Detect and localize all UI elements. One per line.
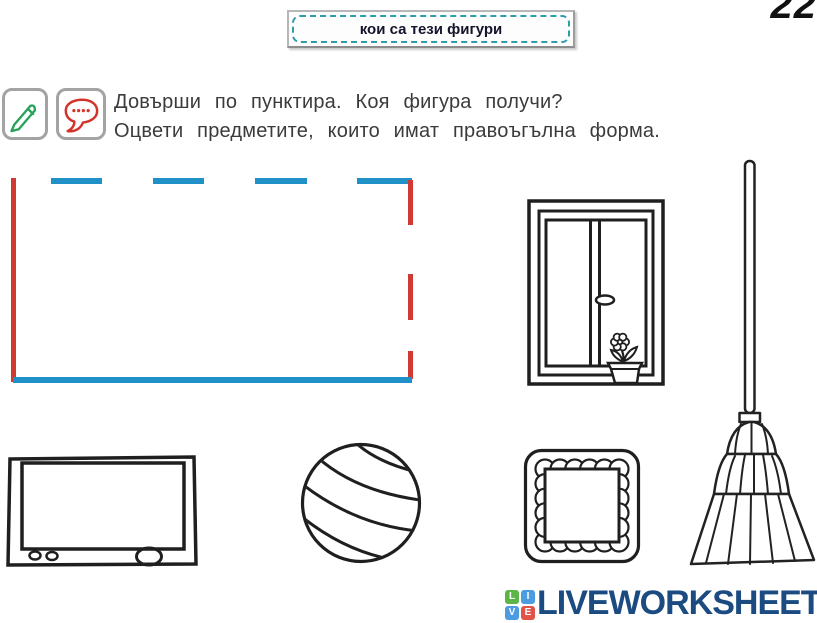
page-number: 22	[771, 0, 817, 28]
title-answer-text[interactable]: кои са тези фигури	[292, 15, 570, 43]
trace-left-solid[interactable]	[11, 178, 16, 382]
trace-bottom-solid[interactable]	[13, 377, 412, 383]
trace-top-dash-2[interactable]	[153, 178, 204, 184]
trace-right-dash-2[interactable]	[408, 274, 413, 320]
frame-inner	[545, 469, 619, 542]
logo-tile-e: E	[521, 606, 535, 620]
trace-right-dash-1[interactable]	[408, 180, 413, 225]
speech-bubble-icon	[62, 93, 100, 135]
task-instructions: Довърши по пунктира. Коя фигура получи? …	[114, 88, 660, 146]
trace-top-dash-3[interactable]	[255, 178, 307, 184]
broom-illustration[interactable]	[688, 158, 817, 570]
window-illustration[interactable]	[527, 199, 665, 387]
trace-top-dash-4[interactable]	[357, 178, 412, 184]
pencil-icon-box	[2, 88, 48, 140]
logo-tile-i: I	[521, 590, 535, 604]
liveworksheets-logo-icon: L I V E	[505, 590, 535, 620]
logo-tile-l: L	[505, 590, 519, 604]
pencil-icon	[7, 93, 43, 135]
instruction-line-2: Оцвети предметите, които имат правоъгълн…	[114, 117, 660, 146]
television-illustration[interactable]	[6, 452, 200, 572]
trace-right-dash-3[interactable]	[408, 351, 413, 379]
liveworksheets-logo: L I V E LIVEWORKSHEETS	[505, 584, 817, 623]
speech-bubble-icon-box	[56, 88, 106, 140]
window-handle	[596, 296, 614, 305]
tv-screen	[22, 463, 184, 549]
trace-top-dash-1[interactable]	[51, 178, 102, 184]
broom-handle	[745, 161, 755, 413]
broom-head	[691, 422, 814, 564]
worksheet-page: 22 кои са тези фигури	[0, 0, 817, 623]
logo-tile-v: V	[505, 606, 519, 620]
liveworksheets-logo-text: LIVEWORKSHEETS	[537, 584, 817, 623]
title-answer-box[interactable]: кои са тези фигури	[287, 10, 575, 48]
ball-outline	[303, 445, 420, 562]
broom-collar	[740, 413, 761, 422]
scalloped-frame-illustration[interactable]	[523, 448, 641, 565]
ball-illustration[interactable]	[299, 441, 425, 567]
instruction-line-1: Довърши по пунктира. Коя фигура получи?	[114, 88, 660, 117]
window-divider	[591, 220, 600, 366]
